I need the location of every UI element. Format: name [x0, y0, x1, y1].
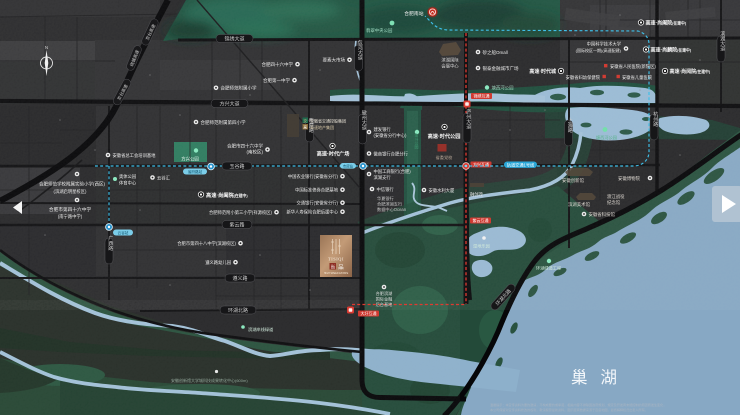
svg-text:安徽创新馆: 安徽创新馆 — [562, 177, 585, 184]
svg-text:滨湖支行: 滨湖支行 — [374, 174, 392, 181]
svg-text:品: 品 — [338, 264, 343, 271]
svg-text:银泰金融城市广场: 银泰金融城市广场 — [483, 65, 519, 72]
svg-text:滨湖国际: 滨湖国际 — [441, 57, 459, 64]
svg-text:合肥第一中学: 合肥第一中学 — [263, 77, 290, 84]
svg-text:高速·时代公园: 高速·时代公园 — [428, 132, 461, 140]
svg-text:锦绣互通: 锦绣互通 — [474, 93, 490, 99]
svg-text:(南宁路中学): (南宁路中学) — [58, 213, 83, 220]
svg-text:高速·尚阖院(在建中): 高速·尚阖院(在建中) — [646, 20, 687, 27]
svg-text:巢湖: 巢湖 — [571, 368, 630, 387]
svg-text:方兴公园: 方兴公园 — [181, 156, 199, 163]
svg-text:湿地乐园: 湿地乐园 — [473, 243, 490, 250]
svg-text:省委党校: 省委党校 — [436, 154, 454, 161]
svg-text:安徽水利大厦: 安徽水利大厦 — [429, 187, 455, 194]
svg-text:数据中心Ocean: 数据中心Ocean — [377, 206, 407, 213]
svg-text:体育中心: 体育中心 — [119, 180, 137, 187]
svg-text:塘西河公园: 塘西河公园 — [596, 134, 617, 141]
svg-text:要素大市场: 要素大市场 — [323, 57, 346, 64]
svg-text:尚: 尚 — [331, 263, 335, 270]
svg-text:紫云互通: 紫云互通 — [473, 217, 489, 223]
svg-text:玉谷路: 玉谷路 — [229, 163, 244, 170]
svg-text:紫云路: 紫云路 — [229, 222, 244, 229]
svg-text:广西路: 广西路 — [107, 235, 113, 252]
svg-text:高速地产集团: 高速地产集团 — [310, 124, 334, 130]
svg-text:安徽省妇幼保健院: 安徽省妇幼保健院 — [566, 74, 601, 81]
svg-text:融创茂: 融创茂 — [470, 191, 484, 198]
svg-text:本公司保留对宣传资料修改的权利，敬请留意最新资料。图示距离数: 本公司保留对宣传资料修改的权利，敬请留意最新资料。图示距离数据来源于百度地图，最… — [490, 407, 648, 412]
svg-text:滨湖岸线绿道: 滨湖岸线绿道 — [248, 326, 274, 333]
svg-text:安徽省儿童医院: 安徽省儿童医院 — [622, 74, 653, 81]
svg-text:云谷站: 云谷站 — [118, 230, 129, 235]
svg-text:塘西河公园: 塘西河公园 — [492, 85, 515, 92]
svg-text:合肥师范附属小学: 合肥师范附属小学 — [221, 85, 257, 92]
svg-text:中国工商银行(合肥): 中国工商银行(合肥) — [374, 168, 412, 175]
svg-text:后台基地: 后台基地 — [376, 301, 394, 308]
svg-text:合肥市第四十六中学: 合肥市第四十六中学 — [49, 206, 92, 213]
svg-text:杭州路: 杭州路 — [652, 111, 658, 128]
svg-text:省府路站: 省府路站 — [188, 169, 203, 174]
svg-text:中国科学技术大学: 中国科学技术大学 — [587, 41, 622, 48]
svg-text:市府站: 市府站 — [343, 163, 354, 168]
svg-text:(滨湖启明星校区): (滨湖启明星校区) — [54, 188, 88, 195]
svg-text:HIGH SPEED ESTATE: HIGH SPEED ESTATE — [324, 272, 349, 275]
svg-text:交通银行(安徽省分行): 交通银行(安徽省分行) — [296, 200, 338, 207]
svg-text:合肥市第四十八中学(滨湖校区): 合肥市第四十八中学(滨湖校区) — [177, 240, 236, 247]
svg-text:安徽省交通控股集团: 安徽省交通控股集团 — [310, 117, 346, 123]
svg-text:合肥师范附属第四小学: 合肥师范附属第四小学 — [201, 119, 246, 126]
svg-text:TISIQI: TISIQI — [328, 257, 344, 262]
svg-text:N: N — [45, 45, 48, 50]
svg-text:方兴大道: 方兴大道 — [219, 101, 239, 108]
svg-text:轨道交通1号线: 轨道交通1号线 — [507, 161, 535, 168]
svg-text:中信银行: 中信银行 — [377, 186, 395, 193]
svg-text:合肥市四十六中学: 合肥市四十六中学 — [227, 143, 263, 150]
svg-text:安徽省人民医院(新院区): 安徽省人民医院(新院区) — [610, 63, 656, 70]
svg-text:金斗公园: 金斗公园 — [415, 132, 420, 150]
svg-text:包河大道: 包河大道 — [357, 39, 363, 61]
svg-text:高速·尚阅院(在建中): 高速·尚阅院(在建中) — [670, 68, 711, 75]
svg-text:(国际校区一期)(高速配建): (国际校区一期)(高速配建) — [576, 47, 622, 53]
svg-text:纪念馆: 纪念馆 — [607, 199, 621, 206]
svg-text:建发银行: 建发银行 — [374, 126, 392, 133]
svg-text:高速·尚麟院(在建中): 高速·尚麟院(在建中) — [651, 47, 692, 54]
svg-text:庐州大道: 庐州大道 — [465, 108, 471, 130]
svg-text:(安徽省分行中心): (安徽省分行中心) — [374, 132, 408, 139]
svg-text:环湖北路: 环湖北路 — [228, 307, 248, 314]
svg-text:(南校区): (南校区) — [247, 149, 264, 156]
svg-text:交: 交 — [303, 118, 307, 123]
svg-text:合肥南站: 合肥南站 — [404, 10, 423, 17]
svg-text:温馨提示：本宣传资料为要约邀请，不构成要约或承诺，相关内容不: 温馨提示：本宣传资料为要约邀请，不构成要约或承诺，相关内容不排除因政府规划、规定… — [490, 402, 666, 407]
svg-text:奥体公园: 奥体公园 — [119, 173, 136, 180]
svg-text:锦绣大道: 锦绣大道 — [224, 36, 244, 43]
svg-text:滨湖大道: 滨湖大道 — [719, 30, 725, 52]
svg-text:会展中心: 会展中心 — [441, 63, 459, 70]
svg-text:环湖绿道工程: 环湖绿道工程 — [536, 265, 562, 272]
svg-text:云谷汇: 云谷汇 — [157, 174, 171, 181]
svg-text:安徽省科技馆: 安徽省科技馆 — [589, 211, 616, 218]
svg-text:合肥师范附小第三小学(祥源校区): 合肥师范附小第三小学(祥源校区) — [209, 209, 273, 216]
svg-text:徽商银行合肥分行: 徽商银行合肥分行 — [374, 150, 409, 157]
svg-text:安徽省总工会培训基地: 安徽省总工会培训基地 — [113, 152, 157, 159]
svg-text:砂之船Omall: 砂之船Omall — [483, 49, 508, 56]
svg-text:遵义路: 遵义路 — [232, 275, 247, 282]
svg-text:翡翠中央公园: 翡翠中央公园 — [366, 27, 393, 34]
svg-text:大圩互通: 大圩互通 — [361, 310, 377, 316]
svg-text:安徽博物院: 安徽博物院 — [618, 175, 641, 182]
svg-text:高速·时代广场: 高速·时代广场 — [317, 150, 350, 158]
svg-text:中国农业银行(安徽省分行): 中国农业银行(安徽省分行) — [288, 173, 339, 180]
svg-text:新华人寿保险合肥后援中心: 新华人寿保险合肥后援中心 — [286, 209, 338, 216]
svg-text:中国标准债券合肥基地: 中国标准债券合肥基地 — [295, 187, 339, 194]
svg-text:上海路: 上海路 — [567, 117, 573, 134]
svg-text:安徽创新馆大学城科技成果转化中心(600m): 安徽创新馆大学城科技成果转化中心(600m) — [171, 377, 248, 383]
svg-text:合肥四十六中学: 合肥四十六中学 — [262, 61, 294, 68]
svg-text:渡江战役: 渡江战役 — [607, 193, 625, 200]
svg-text:合肥师范学校附属实验小学(西区): 合肥师范学校附属实验小学(西区) — [39, 181, 105, 188]
svg-text:徽州大道: 徽州大道 — [361, 109, 367, 131]
svg-text:高速·时代城: 高速·时代城 — [529, 68, 556, 75]
svg-text:高: 高 — [303, 125, 307, 130]
svg-text:遵义路幼儿园: 遵义路幼儿园 — [205, 259, 231, 266]
svg-text:滨湖美术馆: 滨湖美术馆 — [568, 201, 591, 208]
